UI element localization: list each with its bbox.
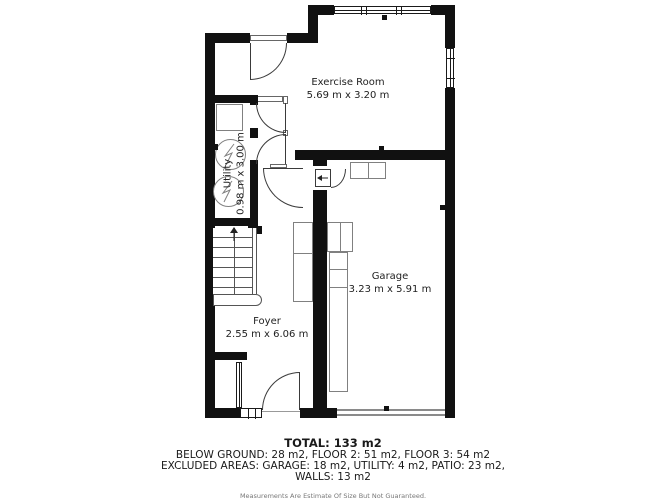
door-threshold-top [250, 35, 287, 41]
room-dims: 5.69 m x 3.20 m [268, 89, 428, 102]
furniture-divider [368, 163, 369, 178]
floor-plan: Exercise Room 5.69 m x 3.20 m Garage 3.2… [0, 0, 666, 500]
summary-block: TOTAL: 133 m2 BELOW GROUND: 28 m2, FLOOR… [0, 437, 666, 500]
wall-utility-right-b [250, 128, 258, 138]
door-arc-garage [331, 169, 346, 188]
window-mullion [248, 409, 249, 419]
wall-utility-top [215, 95, 251, 103]
window-mullion [361, 7, 362, 15]
door-arc-hall-lower [256, 134, 286, 164]
summary-excluded-2: WALLS: 13 m2 [0, 472, 666, 483]
window-mullion [366, 7, 367, 15]
garage-counter [350, 162, 386, 179]
room-dims: 2.55 m x 6.06 m [187, 328, 347, 341]
window-mullion [255, 409, 256, 419]
wall-tick [440, 205, 445, 210]
window-mullion [447, 78, 455, 79]
window-mullion [396, 7, 397, 15]
window-alcove [236, 362, 242, 408]
wall-tick [382, 15, 387, 20]
room-dims: 0.98 m x 3.00 m [235, 119, 248, 229]
wall-garage-top [327, 150, 447, 160]
room-dims: 3.23 m x 5.91 m [310, 283, 470, 296]
garage-door [337, 409, 445, 416]
door-threshold-front [262, 411, 300, 413]
window-top [334, 6, 431, 14]
summary-total: TOTAL: 133 m2 [0, 437, 666, 450]
room-label-foyer: Foyer 2.55 m x 6.06 m [187, 315, 347, 341]
stairs-handrail [213, 294, 262, 306]
wall-topleft-a [205, 33, 250, 43]
door-arc-patio [250, 43, 287, 80]
room-label-exercise: Exercise Room 5.69 m x 3.20 m [268, 76, 428, 102]
wall-right-b [445, 88, 455, 418]
wall-garage-left-b [313, 190, 327, 408]
wall-right-a [445, 5, 455, 48]
wall-tick [379, 146, 384, 151]
window-bottom-small [240, 408, 262, 418]
wall-bottom-b [300, 408, 337, 418]
window-mullion [450, 49, 451, 89]
room-name: Garage [310, 270, 470, 283]
window-mullion [401, 7, 402, 15]
wall-tick [384, 406, 389, 411]
door-arc-hall-upper [256, 103, 286, 133]
summary-disclaimer: Measurements Are Estimate Of Size But No… [0, 492, 666, 500]
wall-top-a [308, 5, 334, 15]
room-name: Utility [223, 119, 236, 229]
wall-tick [213, 144, 218, 150]
room-label-garage: Garage 3.23 m x 5.91 m [310, 270, 470, 296]
door-arc-foyer [263, 168, 303, 208]
furniture-divider [294, 253, 312, 254]
garage-shelf [327, 222, 353, 252]
wall-alcove-top [205, 352, 247, 360]
wall-garage-left-a [313, 150, 327, 166]
furniture-divider [340, 223, 341, 251]
door-arc-front [262, 372, 300, 410]
room-name: Exercise Room [268, 76, 428, 89]
room-label-utility: Utility 0.98 m x 3.00 m [223, 119, 248, 229]
wall-utility-right-c [250, 160, 258, 226]
window-mullion [335, 10, 432, 11]
window-mullion [447, 58, 455, 59]
window-right [446, 48, 454, 88]
room-name: Foyer [187, 315, 347, 328]
window-mullion [239, 363, 240, 409]
wall-bottom-a [205, 408, 240, 418]
stairs-stringer [252, 228, 257, 294]
wall-exercise-stub [295, 150, 313, 160]
entry-arrow-icon [315, 169, 331, 187]
